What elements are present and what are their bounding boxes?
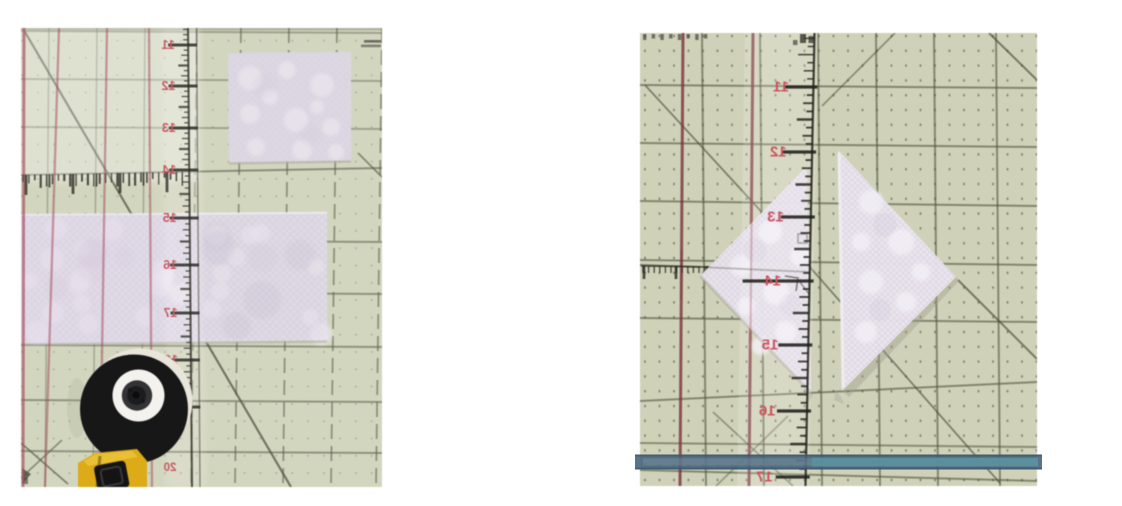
svg-text:12: 12 — [770, 144, 787, 161]
svg-text:15: 15 — [762, 337, 779, 354]
svg-text:16: 16 — [759, 403, 776, 420]
svg-text:11: 11 — [773, 79, 789, 96]
svg-text:14: 14 — [764, 273, 781, 290]
svg-text:17: 17 — [756, 469, 773, 486]
svg-text:13: 13 — [767, 209, 784, 226]
